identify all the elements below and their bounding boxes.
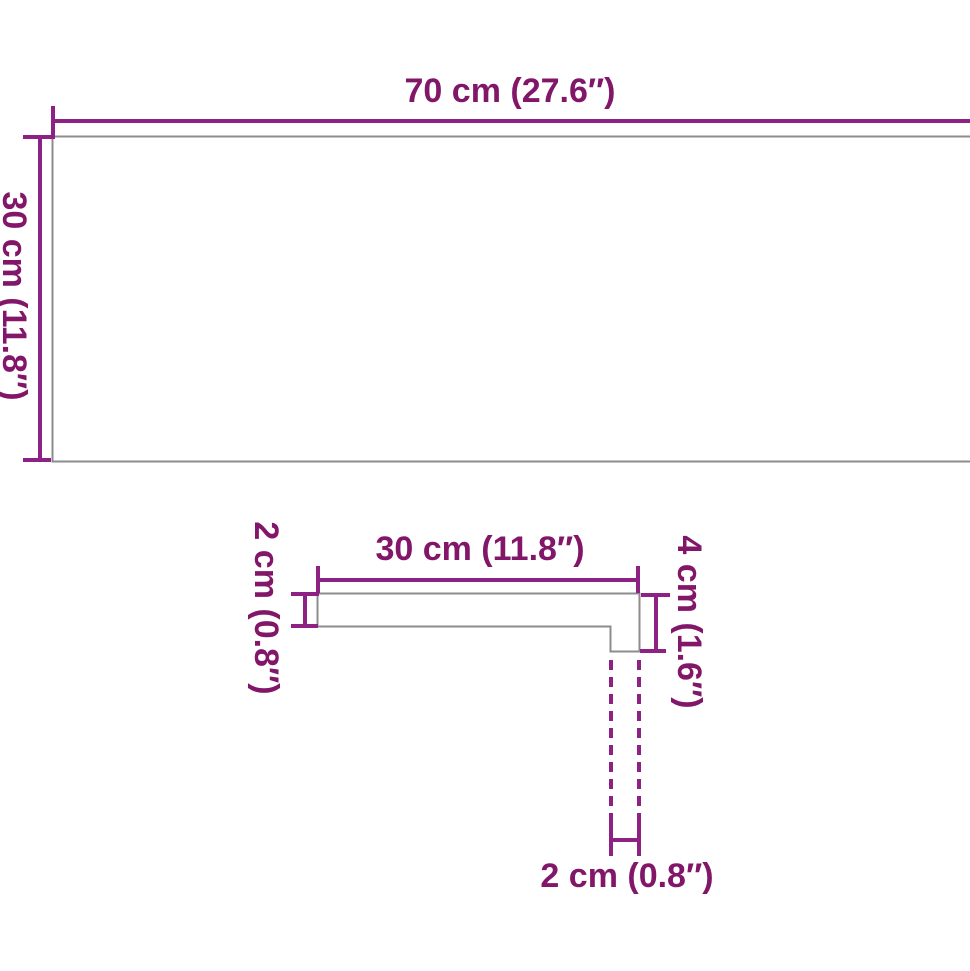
profile-nose-height-dimension-line — [654, 593, 658, 653]
nose-extension-dashed-line-left — [609, 660, 613, 836]
profile-nose-height-dimension-label: 4 cm (1.6″) — [672, 535, 706, 708]
top-depth-dimension-line — [38, 137, 42, 462]
nose-extension-dashed-line-right — [637, 660, 641, 836]
profile-width-dimension-label: 30 cm (11.8″) — [375, 532, 584, 566]
profile-thickness-dimension-tick-top — [291, 592, 319, 596]
top-depth-dimension-label: 30 cm (11.8″) — [0, 191, 31, 400]
profile-nose-height-dimension-tick-bottom — [640, 649, 666, 653]
top-width-dimension-line — [52, 119, 970, 123]
nose-width-dimension-tick-right — [637, 820, 641, 856]
profile-width-dimension-tick-right — [636, 566, 640, 593]
profile-width-dimension-tick-left — [316, 566, 320, 593]
profile-width-dimension-line — [317, 578, 639, 582]
dimension-diagram: 70 cm (27.6″) 30 cm (11.8″) 30 cm (11.8″… — [0, 0, 970, 971]
profile-thickness-dimension-tick-bottom — [291, 624, 318, 628]
top-depth-dimension-tick-bottom — [23, 458, 51, 462]
nose-width-dimension-tick-left — [609, 820, 613, 856]
product-outlines — [0, 0, 970, 971]
top-width-dimension-label: 70 cm (27.6″) — [405, 74, 616, 108]
top-width-dimension-tick-left — [51, 106, 55, 135]
profile-outline — [318, 594, 640, 652]
profile-thickness-dimension-line — [303, 592, 307, 628]
nose-width-dimension-label: 2 cm (0.8″) — [540, 859, 713, 893]
profile-thickness-dimension-label: 2 cm (0.8″) — [249, 521, 283, 694]
profile-nose-height-dimension-tick-top — [641, 593, 670, 597]
top-view-outline — [53, 137, 970, 462]
top-depth-dimension-tick-top — [23, 135, 55, 139]
